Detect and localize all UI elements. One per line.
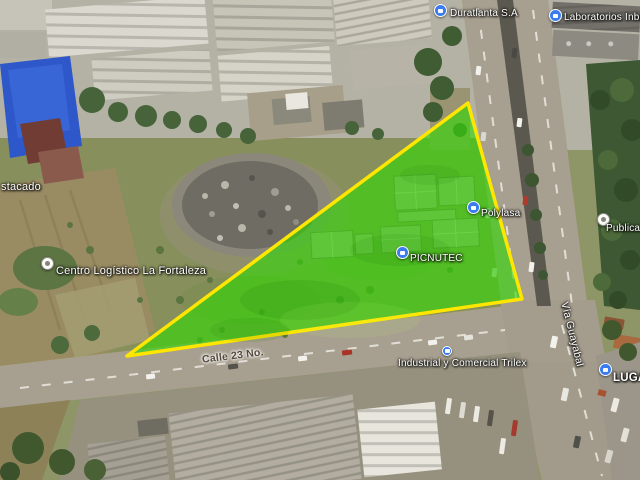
business-poi-icon[interactable] [467, 201, 480, 214]
poi-label-picnutec[interactable]: PICNUTEC [410, 253, 463, 264]
satellite-imagery [0, 0, 640, 480]
poi-label-centro-logistico[interactable]: Centro Logístico La Fortaleza [56, 265, 206, 277]
business-poi-icon[interactable] [434, 4, 447, 17]
business-poi-icon[interactable] [396, 246, 409, 259]
poi-label-trilex[interactable]: Industrial y Comercial Trilex [398, 358, 527, 369]
place-pin-icon[interactable] [41, 257, 54, 270]
satellite-map[interactable]: Duratlanta S.A Laboratorios Inbume staca… [0, 0, 640, 480]
business-poi-icon[interactable] [549, 9, 562, 22]
poi-label-company-top[interactable]: Duratlanta S.A [450, 8, 518, 19]
poi-label-luga[interactable]: LUGA [613, 372, 640, 385]
poi-label-partial-left[interactable]: stacado [1, 181, 41, 193]
poi-label-polylasa[interactable]: Polylasa [481, 208, 520, 219]
business-poi-icon[interactable] [599, 363, 612, 376]
poi-label-publica[interactable]: Publica [606, 223, 640, 234]
poi-label-company-top-right[interactable]: Laboratorios Inbume [564, 12, 640, 23]
business-poi-icon[interactable] [442, 346, 452, 356]
